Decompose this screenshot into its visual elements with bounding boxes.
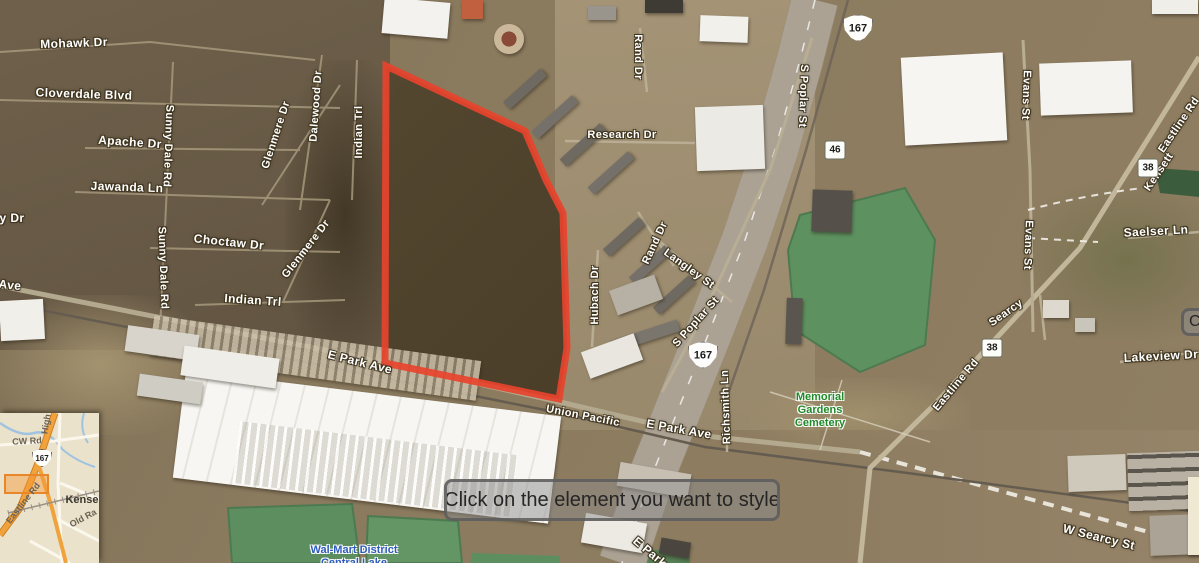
- inset-label: Kense: [65, 494, 98, 506]
- inset-roads: [0, 413, 99, 563]
- cemetery-label: MemorialGardensCemetery: [795, 391, 845, 430]
- inset-label: CW Rd: [12, 435, 42, 447]
- partial-tooltip-right-edge: Ca: [1181, 308, 1199, 336]
- map-canvas[interactable]: Mohawk DrCloverdale BlvdApache DrJawanda…: [0, 0, 1199, 563]
- inset-overview-map[interactable]: HighCW RdEastline RdKenseOld Ra 167: [0, 413, 99, 563]
- lake-label: Wal-Mart DistrictCentral Lake: [311, 544, 398, 563]
- style-editor-tooltip: Click on the element you want to style: [444, 479, 780, 521]
